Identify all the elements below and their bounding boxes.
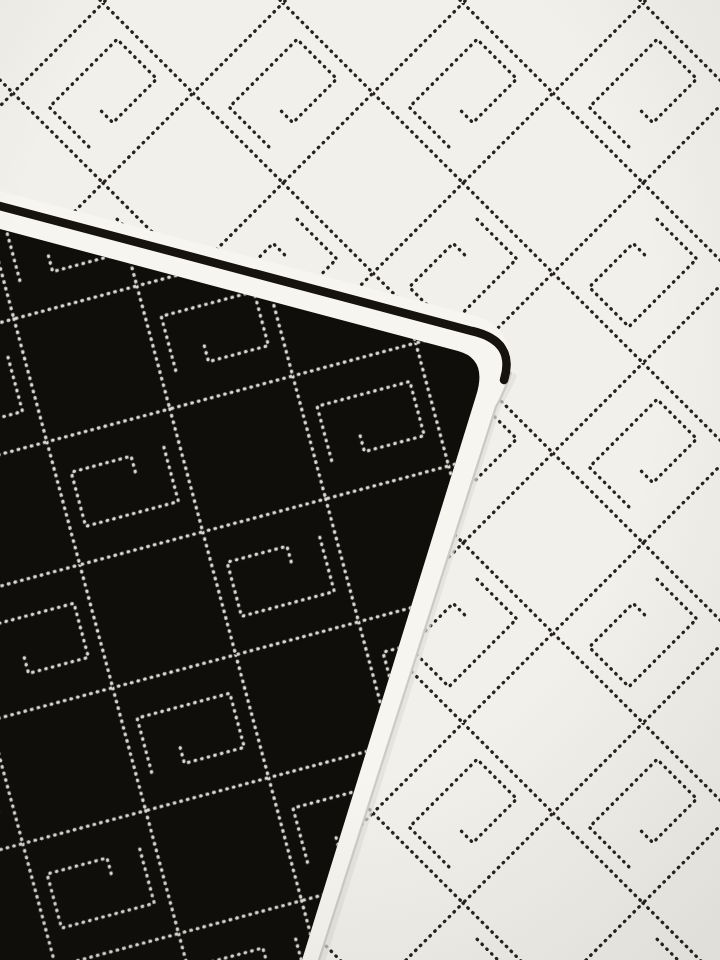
- scarf-photo: [0, 0, 720, 960]
- vignette-overlay: [0, 0, 720, 960]
- scarf-photo-canvas: [0, 0, 720, 960]
